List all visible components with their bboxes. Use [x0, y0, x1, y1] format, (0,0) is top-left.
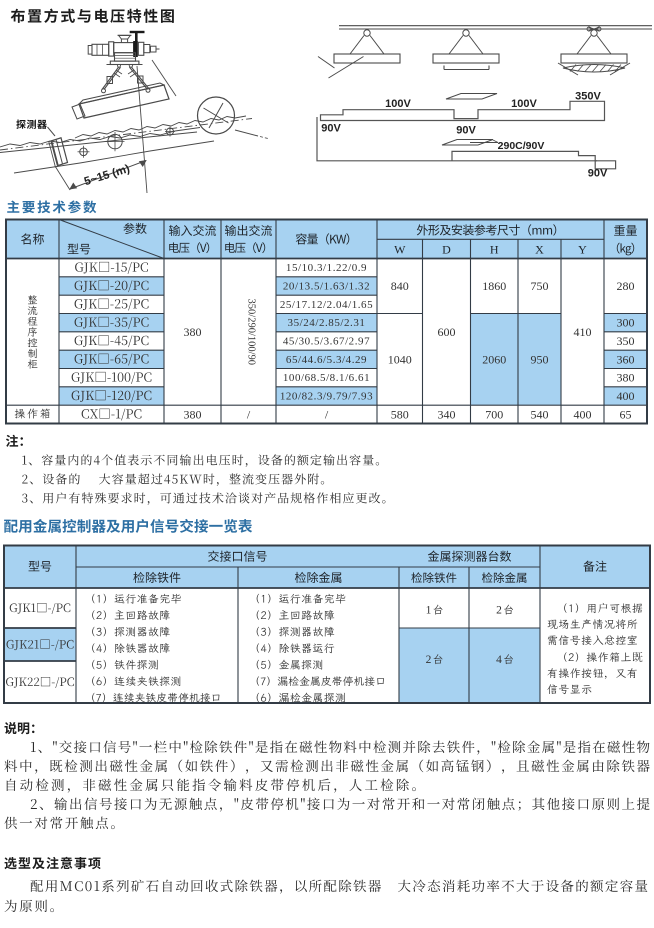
svg-text:410: 410	[574, 325, 592, 339]
svg-text:H: H	[490, 243, 499, 257]
svg-text:350/290/100/90: 350/290/100/90	[246, 299, 257, 366]
svg-text:1040: 1040	[388, 352, 412, 366]
svg-text:700: 700	[485, 407, 503, 421]
svg-text:950: 950	[531, 352, 549, 366]
svg-text:90V: 90V	[321, 123, 341, 135]
svg-text:W: W	[394, 243, 406, 257]
svg-text:2: 2	[426, 654, 432, 666]
svg-text:D: D	[442, 243, 451, 257]
svg-text:90V: 90V	[588, 168, 608, 180]
svg-text:300: 300	[617, 316, 635, 330]
svg-text:25/17.12/2.04/1.65: 25/17.12/2.04/1.65	[280, 299, 373, 311]
svg-text:/: /	[247, 407, 251, 421]
svg-text:100V: 100V	[511, 98, 537, 110]
svg-text:15/10.3/1.22/0.9: 15/10.3/1.22/0.9	[286, 262, 367, 274]
svg-text:350V: 350V	[575, 91, 601, 103]
svg-text:290C/90V: 290C/90V	[498, 140, 545, 152]
svg-text:35/24/2.85/2.31: 35/24/2.85/2.31	[288, 317, 366, 329]
svg-text:65: 65	[620, 407, 632, 421]
svg-text:1860: 1860	[482, 279, 506, 293]
svg-text:750: 750	[531, 279, 549, 293]
svg-text:90V: 90V	[456, 125, 476, 137]
svg-text:5~15 (m): 5~15 (m)	[83, 163, 132, 188]
svg-text:2: 2	[496, 605, 502, 617]
svg-text:380: 380	[184, 325, 202, 339]
svg-text:600: 600	[438, 325, 456, 339]
svg-text:380: 380	[184, 407, 202, 421]
svg-text:4: 4	[496, 654, 502, 666]
svg-text:840: 840	[391, 279, 409, 293]
svg-text:580: 580	[391, 407, 409, 421]
svg-text:20/13.5/1.63/1.32: 20/13.5/1.63/1.32	[283, 281, 370, 293]
svg-text:120/82.3/9.79/7.93: 120/82.3/9.79/7.93	[280, 391, 373, 403]
svg-text:1: 1	[426, 605, 432, 617]
svg-text:Y: Y	[578, 243, 587, 257]
svg-text:X: X	[535, 243, 544, 257]
svg-text:340: 340	[438, 407, 456, 421]
svg-text:400: 400	[617, 389, 635, 403]
svg-text:350: 350	[617, 334, 635, 348]
svg-text:100V: 100V	[385, 98, 411, 110]
svg-text:400: 400	[574, 407, 592, 421]
svg-text:45/30.5/3.67/2.97: 45/30.5/3.67/2.97	[283, 336, 370, 348]
svg-text:360: 360	[617, 352, 635, 366]
svg-text:100/68.5/8.1/6.61: 100/68.5/8.1/6.61	[283, 372, 370, 384]
svg-text:2060: 2060	[482, 352, 506, 366]
svg-text:/: /	[325, 407, 329, 421]
svg-text:540: 540	[531, 407, 549, 421]
svg-text:65/44.6/5.3/4.29: 65/44.6/5.3/4.29	[286, 354, 367, 366]
svg-text:280: 280	[617, 279, 635, 293]
svg-text:380: 380	[617, 371, 635, 385]
